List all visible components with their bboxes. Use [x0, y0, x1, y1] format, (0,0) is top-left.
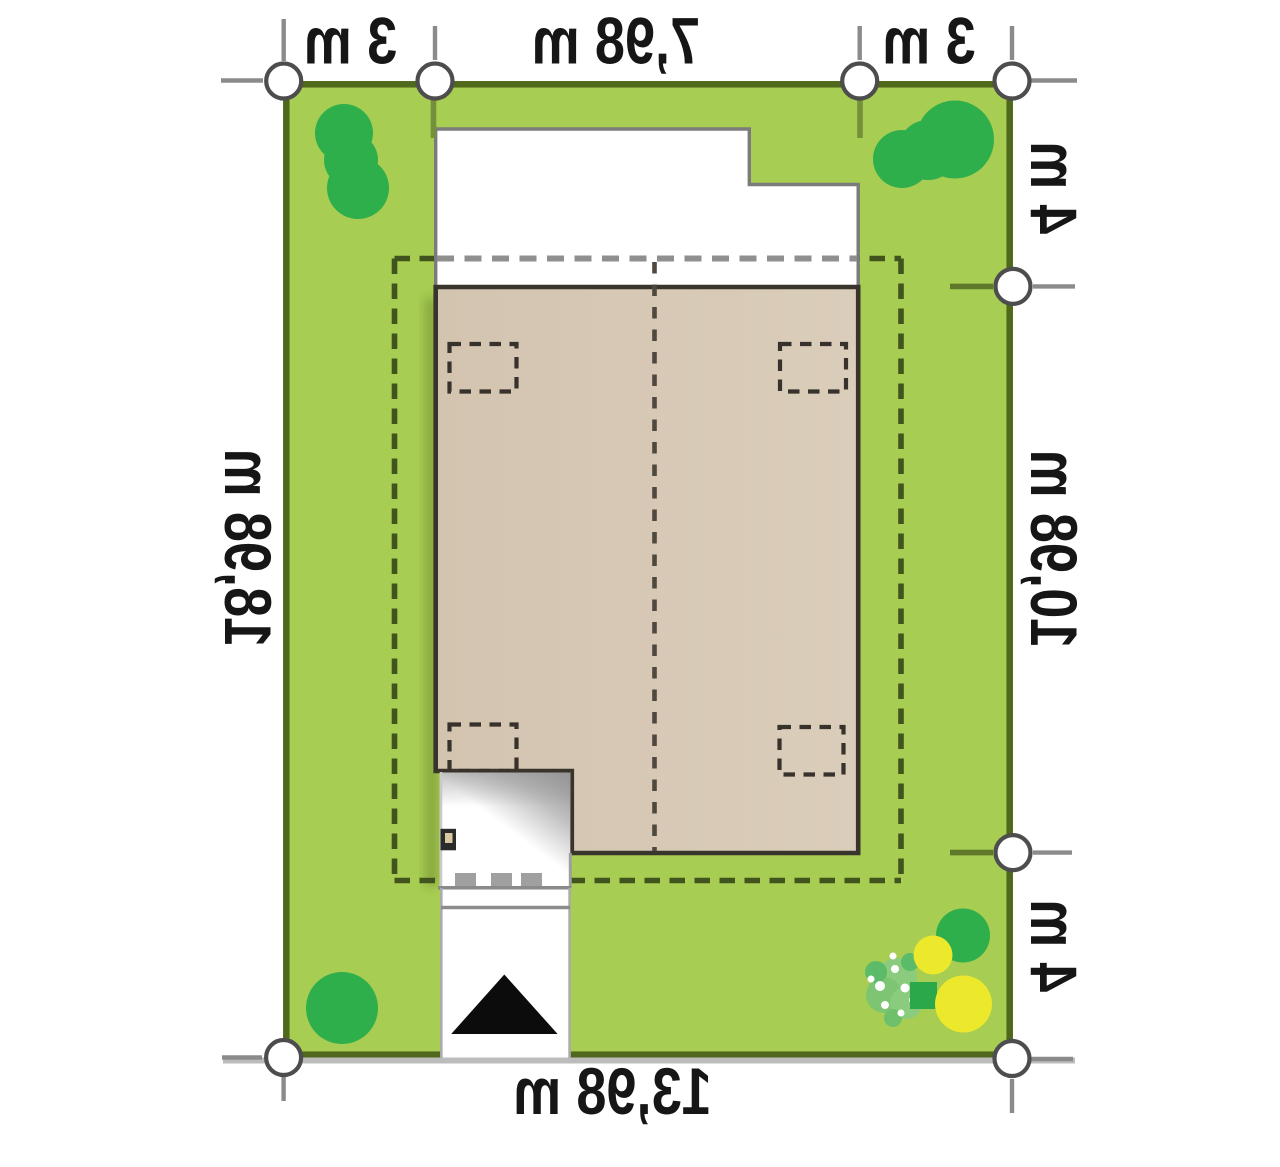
svg-text:13,98 m: 13,98 m [513, 1054, 712, 1128]
svg-text:4 m: 4 m [1017, 141, 1091, 234]
svg-text:10,98 m: 10,98 m [1017, 450, 1091, 649]
svg-text:18,98 m: 18,98 m [211, 449, 285, 648]
svg-text:4 m: 4 m [1017, 899, 1091, 992]
svg-text:3 m: 3 m [304, 3, 397, 77]
svg-text:3 m: 3 m [882, 3, 975, 77]
svg-text:7,98 m: 7,98 m [532, 3, 700, 77]
